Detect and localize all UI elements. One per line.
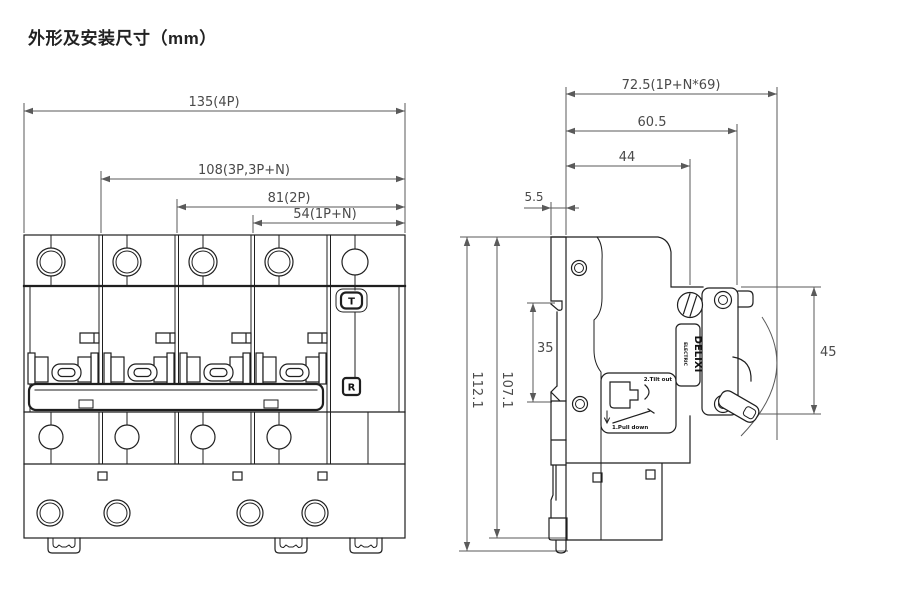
dim-rail-offset: 5.5 (524, 190, 543, 204)
page: 外形及安装尺寸（mm） 135(4P) 108(3P,3P+N) 81(2P) … (0, 0, 900, 597)
mounting-feet (48, 538, 382, 553)
din-rail-strip (549, 237, 567, 553)
handle-latch-mechanism (28, 353, 326, 384)
brand-name: DELIXI (692, 336, 703, 373)
dim-body-width: 44 (619, 150, 636, 165)
dim-total-height: 112.1 (469, 371, 484, 408)
brand-label: DELIXI ELECTRIC (676, 324, 703, 386)
dim-total-width: 72.5(1P+N*69) (622, 78, 721, 93)
dim-width-2p: 81(2P) (268, 191, 311, 206)
front-dimension-lines: 135(4P) 108(3P,3P+N) 81(2P) 54(1P+N) (24, 95, 405, 233)
dim-din-slot: 35 (537, 341, 554, 356)
dim-width-1pn: 54(1P+N) (293, 207, 356, 222)
toggle-handle (716, 388, 761, 425)
instruction-step1: 1.Pull down (612, 425, 648, 431)
handle-tie-bar (29, 384, 323, 410)
terminal-screw (678, 293, 703, 318)
lower-housing (37, 472, 328, 526)
dim-width-4p: 135(4P) (188, 95, 239, 110)
dim-body-height: 107.1 (499, 371, 514, 408)
dim-width-3p: 108(3P,3P+N) (198, 163, 290, 178)
instruction-step2: 2.Tilt out (644, 377, 673, 383)
brand-sub: ELECTRIC (682, 342, 688, 367)
dim-front-width: 60.5 (638, 115, 667, 130)
test-button-label: T (348, 297, 355, 308)
reset-button: R (343, 378, 360, 395)
top-terminal-screws (37, 235, 368, 290)
clamp-screw-top (715, 292, 732, 309)
din-clip (549, 518, 567, 553)
dimension-drawing: 135(4P) 108(3P,3P+N) 81(2P) 54(1P+N) (0, 0, 900, 597)
rcd-module: T R (336, 289, 367, 395)
dim-front-face-height: 45 (820, 345, 837, 360)
side-dimension-lines: 72.5(1P+N*69) 60.5 44 5.5 45 35 (459, 78, 837, 551)
pole-label-windows (80, 333, 327, 343)
bottom-terminal-screws (39, 412, 291, 464)
test-button: T (336, 289, 367, 312)
terminal-cage-tab (738, 291, 753, 307)
din-release-label: 2.Tilt out 1.Pull down (601, 373, 676, 433)
reset-button-label: R (348, 383, 356, 394)
side-view: 72.5(1P+N*69) 60.5 44 5.5 45 35 (459, 78, 837, 553)
front-view: 135(4P) 108(3P,3P+N) 81(2P) 54(1P+N) (24, 95, 405, 553)
